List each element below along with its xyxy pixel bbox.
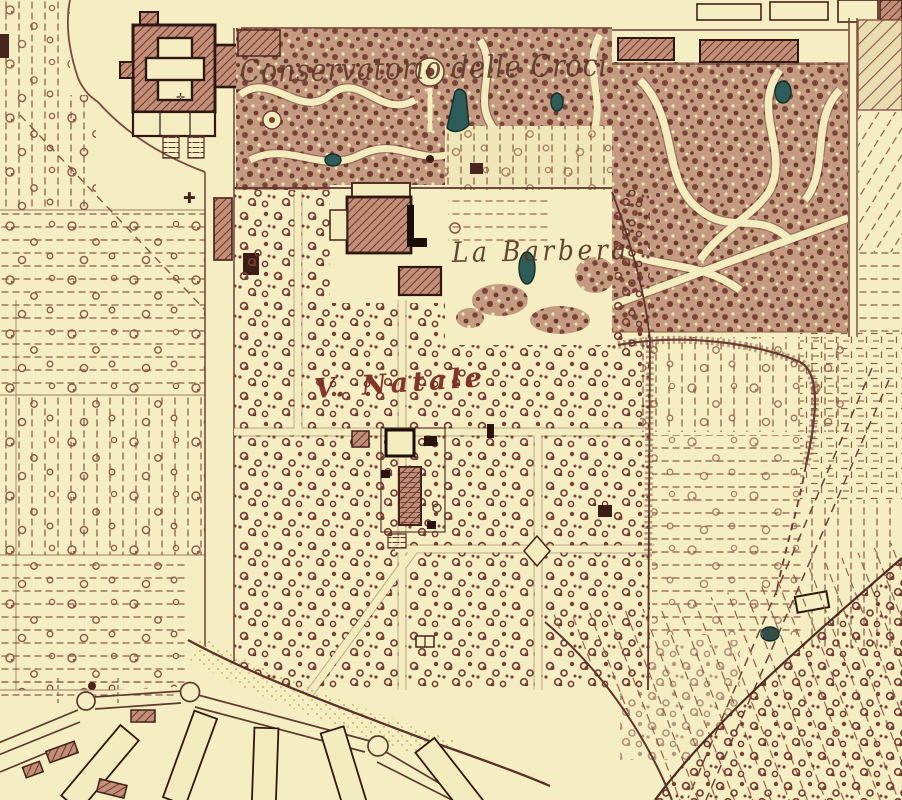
pond-small	[325, 154, 341, 166]
roadside-building	[214, 198, 232, 260]
pond-small	[551, 93, 563, 111]
small-building-block	[0, 34, 9, 58]
courtyard-cross-marker: ✛	[176, 91, 185, 104]
garden-hut	[470, 163, 483, 174]
historical-map: ✚ ✛	[0, 0, 902, 800]
building-bar	[700, 40, 798, 62]
map-label-la-barbera: La Barbera	[451, 233, 630, 269]
garden-bed	[188, 136, 204, 158]
pond	[775, 81, 791, 103]
building-outline	[770, 2, 828, 20]
small-structure	[598, 505, 612, 517]
building-bar	[618, 38, 674, 60]
small-structure	[487, 424, 494, 438]
map-svg: ✚ ✛	[0, 0, 902, 800]
bastion-turret	[368, 736, 388, 756]
bastion-turret	[77, 692, 95, 710]
bastion-turret	[181, 683, 200, 702]
building-outline	[838, 0, 878, 22]
map-label-conservatorio: Conservatorio delle Croci	[240, 48, 609, 90]
annex	[133, 112, 215, 136]
garden-bed	[163, 136, 179, 158]
northeast-garden	[612, 0, 902, 337]
wayside-cross-marker: ✚	[183, 189, 196, 207]
farm-building	[386, 430, 414, 456]
building-outline	[697, 4, 761, 20]
hatched-block	[858, 20, 902, 110]
